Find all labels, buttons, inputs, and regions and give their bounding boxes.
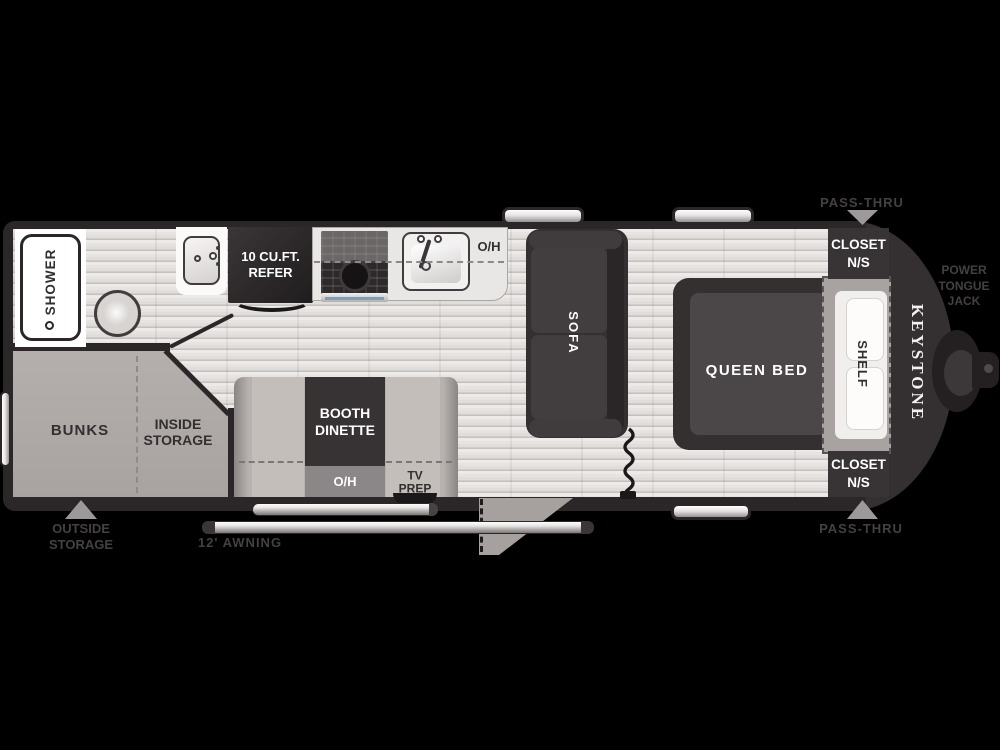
refrigerator-label: 10 CU.FT. REFER bbox=[241, 249, 300, 281]
bath-sink-bowl bbox=[183, 236, 220, 285]
stove-burner bbox=[339, 260, 371, 292]
power-tongue-jack-label: POWER TONGUE JACK bbox=[938, 263, 989, 310]
window-top-left bbox=[502, 207, 584, 225]
pass-thru-top-label: PASS-THRU bbox=[820, 195, 904, 211]
refrigerator-door-arc bbox=[233, 290, 311, 312]
dinette-seat-left bbox=[252, 377, 304, 497]
closet-top-label: CLOSET N/S bbox=[831, 236, 886, 272]
floorplan-canvas: SHOWER 10 CU.FT. REFER O/H BUNKS INSIDE … bbox=[0, 0, 1000, 750]
shelf-label: SHELF bbox=[854, 340, 870, 388]
bath-faucet-dot2 bbox=[216, 262, 220, 266]
closet-bottom: CLOSET N/S bbox=[828, 451, 889, 497]
shower-drain bbox=[45, 321, 54, 330]
range-front-trim bbox=[325, 297, 384, 300]
hitch-coupler-hole bbox=[984, 364, 993, 373]
bath-faucet-dot bbox=[216, 246, 220, 250]
dinette-seat-back-left bbox=[234, 377, 249, 497]
dinette-seat-back-right bbox=[443, 377, 458, 497]
closet-top: CLOSET N/S bbox=[828, 228, 889, 279]
awning-bar-upper-cap bbox=[429, 503, 438, 516]
shower-label: SHOWER bbox=[43, 249, 59, 316]
tv-prep-label: TV PREP bbox=[399, 470, 432, 495]
curtain-foot bbox=[620, 491, 636, 499]
bunks-label: BUNKS bbox=[51, 422, 109, 440]
outside-storage-label: OUTSIDE STORAGE bbox=[49, 521, 113, 553]
dinette-table: BOOTH DINETTE bbox=[305, 377, 385, 466]
queen-bed-label: QUEEN BED bbox=[706, 362, 809, 380]
awning-bar-lower bbox=[202, 521, 594, 534]
closet-bottom-label: CLOSET N/S bbox=[831, 456, 886, 492]
curtain-squiggle bbox=[617, 427, 641, 499]
stove-cover bbox=[321, 231, 388, 261]
inside-storage-label: INSIDE STORAGE bbox=[144, 416, 213, 448]
window-rear bbox=[0, 391, 11, 467]
dinette-oh-label: O/H bbox=[333, 474, 356, 490]
dinette-label: BOOTH DINETTE bbox=[315, 405, 375, 439]
dinette-dash-right bbox=[386, 461, 452, 463]
sofa-back bbox=[607, 236, 624, 431]
awning-bar-upper bbox=[252, 503, 438, 516]
kitchen-faucet bbox=[417, 235, 425, 243]
bath-faucet bbox=[209, 252, 217, 260]
window-bottom bbox=[671, 503, 751, 520]
bunks-divider bbox=[136, 356, 138, 493]
pass-thru-bottom-label: PASS-THRU bbox=[819, 521, 903, 537]
awning-label: 12' AWNING bbox=[198, 535, 282, 551]
awning-bar-lower-cap-right bbox=[581, 521, 594, 534]
kitchen-oh-label: O/H bbox=[477, 239, 500, 255]
window-top-right bbox=[672, 207, 754, 225]
keystone-logo: KEYSTONE bbox=[907, 304, 927, 422]
dinette-dash-left bbox=[239, 461, 303, 463]
awning-bar-lower-cap-left bbox=[202, 521, 215, 534]
bath-sink-drain bbox=[194, 255, 201, 262]
sofa-label: SOFA bbox=[565, 311, 581, 354]
kitchen-oh-dashline bbox=[314, 261, 504, 263]
kitchen-faucet2 bbox=[434, 235, 442, 243]
toilet-highlight bbox=[104, 299, 129, 326]
sofa-arm-bottom bbox=[529, 419, 622, 437]
sofa-arm-top bbox=[529, 231, 622, 249]
